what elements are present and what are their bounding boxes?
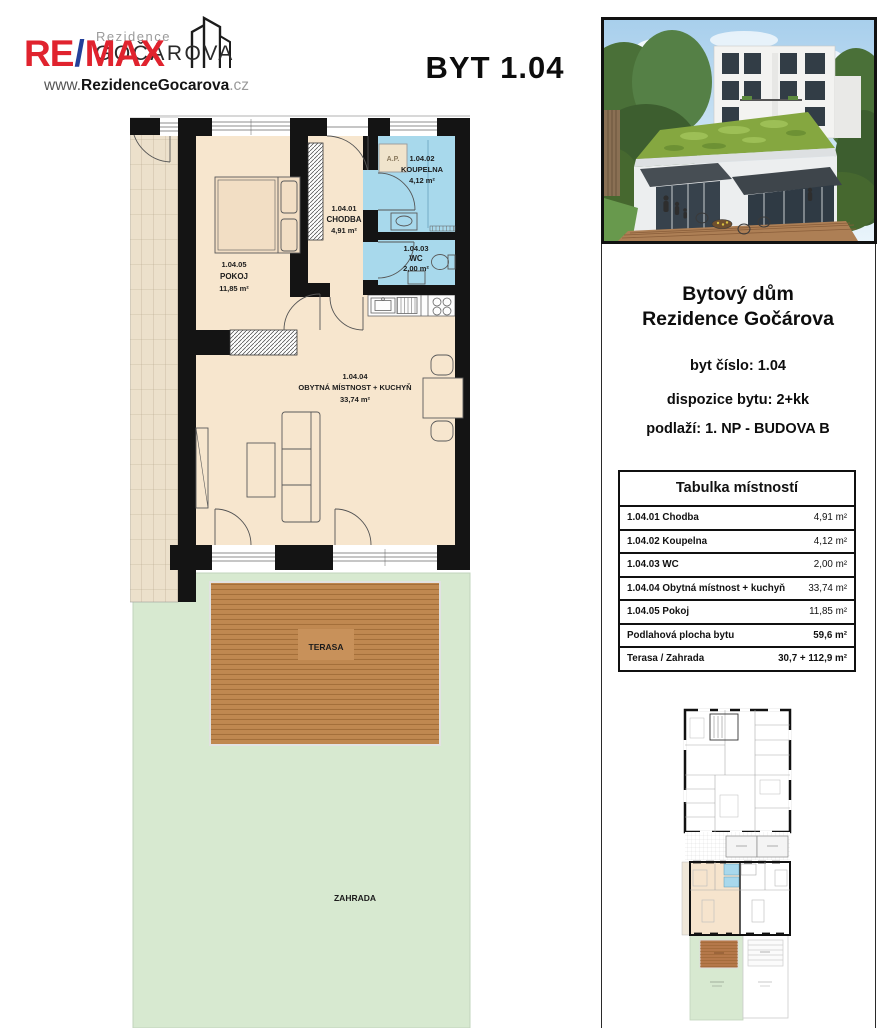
pokoj-area: 11,85 m²: [219, 284, 249, 293]
table-row: 1.04.05 Pokoj11,85 m²: [620, 601, 854, 625]
unit-number: byt číslo: 1.04: [604, 358, 872, 374]
wc-area: 2,00 m²: [403, 264, 429, 273]
building-render-svg: [604, 20, 874, 241]
table-row: 1.04.01 Chodba4,91 m²: [620, 507, 854, 531]
unit-floor: podlaží: 1. NP - BUDOVA B: [604, 421, 872, 437]
wc-name: WC: [409, 254, 423, 263]
pokoj-name: POKOJ: [220, 272, 248, 281]
entry-walkway: [130, 118, 178, 602]
overview-walkway: [685, 832, 790, 860]
koupelna-name: KOUPELNA: [401, 165, 444, 174]
overview-terrace-left: [700, 940, 738, 968]
website-link[interactable]: www.RezidenceGocarova.cz: [44, 77, 249, 95]
unit-layout: dispozice bytu: 2+kk: [604, 392, 872, 408]
chodba-name: CHODBA: [326, 215, 361, 224]
koupelna-area: 4,12 m²: [409, 176, 435, 185]
overview-lower-building: [682, 861, 790, 935]
page: Rezidence GOČÁROVA RE/MAX www.RezidenceG…: [0, 0, 892, 1028]
living-area: 33,74 m²: [340, 395, 371, 404]
logo-block: Rezidence GOČÁROVA RE/MAX www.RezidenceG…: [0, 0, 310, 100]
info-block: Bytový dům Rezidence Gočárova byt číslo:…: [604, 282, 872, 437]
koupelna-id: 1.04.02: [409, 154, 434, 163]
living-name: OBYTNÁ MÍSTNOST + KUCHYŇ: [298, 383, 411, 392]
remax-logo: RE/MAX: [24, 33, 164, 75]
table-row: 1.04.03 WC2,00 m²: [620, 554, 854, 578]
overview-terrace-right: [748, 940, 783, 966]
remax-slash: /: [73, 33, 84, 74]
page-title: BYT 1.04: [405, 50, 585, 86]
table-row: 1.04.02 Koupelna4,12 m²: [620, 531, 854, 555]
overview-upper-building: [684, 709, 792, 834]
pokoj-id: 1.04.05: [221, 260, 246, 269]
kitchen-counter: [368, 295, 455, 316]
zahrada-label: ZAHRADA: [334, 893, 376, 903]
table-row: Terasa / Zahrada30,7 + 112,9 m²: [620, 648, 854, 670]
room-table-title: Tabulka místností: [620, 472, 854, 507]
living-id: 1.04.04: [342, 372, 368, 381]
building-title-line2: Rezidence Gočárova: [604, 307, 872, 332]
table-row: 1.04.04 Obytná místnost + kuchyň33,74 m²: [620, 578, 854, 602]
overview-floorplan: [660, 700, 875, 1025]
room-table: Tabulka místností 1.04.01 Chodba4,91 m² …: [618, 470, 856, 672]
building-title-line1: Bytový dům: [604, 282, 872, 307]
floorplan-svg: 1.04.05 POKOJ 11,85 m² 1.04.01 CHODBA 4,…: [130, 115, 475, 1028]
building-render: [601, 17, 877, 244]
table-row: Podlahová plocha bytu59,6 m²: [620, 625, 854, 649]
terasa-label: TERASA: [309, 642, 344, 652]
chodba-area: 4,91 m²: [331, 226, 357, 235]
wc-id: 1.04.03: [403, 244, 428, 253]
ap-label: A.P.: [387, 156, 400, 163]
chodba-id: 1.04.01: [331, 204, 356, 213]
terrace-deck: [210, 582, 440, 745]
